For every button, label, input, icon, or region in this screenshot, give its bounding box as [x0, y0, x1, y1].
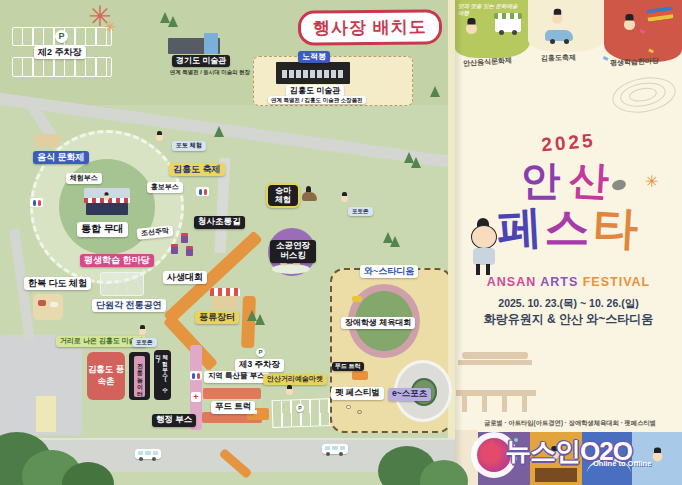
local-goods-label: 지역 특산물 부스	[204, 371, 269, 383]
horse-riding-label: 승마 체험	[266, 183, 300, 208]
title-en-word: ARTS	[540, 275, 578, 289]
gyeonggi-museum-label: 경기도 미술관	[172, 55, 230, 67]
food-truck-b-label: 푸드 트럭	[332, 362, 364, 371]
lifelong-learning-label: 평생학습 한마당	[80, 254, 154, 267]
hanok-pavilion	[455, 348, 540, 418]
food-booth-bar	[203, 388, 261, 399]
trad-playground-box: 전통놀이터	[129, 352, 150, 400]
food-culture-label: 음식 문화제	[33, 151, 89, 164]
kimhongdo-museum-subtext: 연계 특별전 / 김홍도 미술관 소장품전	[268, 96, 366, 104]
sub-events-line: 글로벌 · 아트타임(아트경연) · 장애학생체육대회 · 펫페스티벌	[461, 419, 679, 428]
museum-window-band	[282, 70, 344, 78]
hanbok-tea-label: 한복 다도 체험	[24, 277, 91, 290]
busking-label: 소공연장 버스킹	[270, 240, 316, 263]
map-title: 행사장 배치도	[298, 9, 442, 46]
photo-character	[155, 131, 164, 144]
busking-mat	[272, 264, 310, 274]
restroom-icon	[190, 371, 202, 380]
danwongak-label: 단원각 전통공연	[92, 299, 166, 312]
strip-scene-band	[535, 468, 577, 482]
folk-village-box: 김홍도 풍속촌	[87, 352, 125, 400]
parking-icon: P	[55, 30, 68, 43]
track-cart-icon	[352, 296, 362, 302]
horse-icon	[302, 192, 317, 201]
dog-icon	[346, 405, 351, 409]
poster-date: 2025. 10. 23.(목) ~ 10. 26.(일)	[455, 297, 682, 311]
lantern-box-icon	[181, 233, 188, 243]
fireworks-icon: ✳✳	[80, 0, 120, 38]
gyeonggi-museum-glass	[204, 33, 218, 54]
first-aid-icon: +	[191, 392, 201, 402]
food-festival-picnic	[35, 134, 61, 147]
festival-path-seg3	[241, 296, 256, 348]
wa-stadium-label: 와~스타디움	[360, 265, 418, 278]
tree-icon	[411, 157, 421, 168]
blue-car-icon	[545, 30, 573, 41]
parking2-label: 제2 주차장	[34, 46, 86, 59]
pale-building	[36, 396, 56, 432]
nojeokbong-label: 노적봉	[298, 51, 330, 63]
sketch-contest-label: 사생대회	[163, 271, 207, 284]
food-cart-icon	[495, 16, 521, 32]
gyeonggi-museum-subtext: 연계 특별전 / 동시대 미술의 현장	[150, 69, 270, 76]
mascot-character	[464, 18, 478, 39]
tree-icon	[430, 86, 440, 97]
title-char: 타	[591, 197, 642, 259]
photo-experience-label: 포토 체험	[172, 141, 206, 151]
kimhongdo-museum-building	[276, 62, 350, 84]
admin-booth-label: 행정 부스	[152, 414, 196, 427]
tab-kimhongdo: 김홍도축제	[541, 52, 576, 63]
festival-map: P 제2 주차장 ✳✳ 경기도 미술관 연계 특별전 / 동시대 미술의 현장 …	[0, 0, 455, 485]
esports-label: e~스포츠	[388, 388, 431, 401]
parking-icon: P	[256, 348, 265, 357]
tea-mat	[33, 294, 63, 320]
tree-icon	[214, 126, 224, 137]
poster-title-en: ANSAN ARTS FESTIVAL	[455, 275, 682, 289]
street-art-market-label: 안산거리예술마켓	[263, 374, 327, 385]
map-edge-strip	[448, 0, 455, 438]
disabled-sports-label: 장애학생 체육대회	[341, 317, 415, 329]
tram-icon	[322, 444, 348, 454]
danwongak-pavilion-icon	[100, 272, 144, 296]
street-artist-character	[285, 385, 294, 398]
watermark-tagline: Online to Offline	[593, 459, 651, 468]
booth-repair-label: 체험부스(수리)	[156, 350, 170, 400]
market-stall-icon	[210, 288, 240, 310]
experience-booth-label: 체험부스	[66, 173, 102, 184]
photozone-character	[340, 192, 349, 205]
dog-icon	[357, 410, 362, 414]
lantern-road-label: 청사초롱길	[194, 216, 245, 229]
tram-icon	[135, 449, 161, 459]
tree-icon	[255, 314, 265, 325]
mascot-character	[551, 9, 565, 29]
strip-character	[651, 447, 664, 465]
trad-playground-label: 전통놀이터	[134, 356, 145, 397]
stadium-sketch	[610, 73, 679, 118]
parking3-grid	[272, 398, 337, 428]
booth-repair-box: 체험부스(수리)	[154, 350, 171, 400]
parking2-row2	[12, 57, 112, 77]
main-stage-label: 통합 무대	[77, 222, 128, 237]
tree-icon	[390, 236, 400, 247]
tab-food-festival: 안산음식문화제	[463, 55, 513, 68]
title-en-word: ANSAN	[487, 275, 536, 289]
tree-icon	[168, 16, 178, 27]
food-truck-icon	[352, 371, 368, 380]
panel-kimhongdo	[528, 0, 606, 52]
event-poster: 맛과 멋을 잇는 문화예술 여행 안산음식문화제 김홍도축제 평생학습한마당 2…	[455, 0, 682, 485]
photozone-b-label: 포토존	[132, 338, 157, 347]
lantern-box-icon	[171, 244, 178, 254]
screenshot-root: P 제2 주차장 ✳✳ 경기도 미술관 연계 특별전 / 동시대 미술의 현장 …	[0, 0, 682, 485]
photozone-a-label: 포토존	[348, 207, 373, 216]
parking-icon: P	[296, 404, 304, 412]
stage-icon	[84, 188, 130, 216]
mascot-character-large	[463, 218, 509, 276]
restroom-icon	[30, 198, 43, 207]
poster-venue: 화랑유원지 & 안산 와~스타디움	[455, 311, 682, 328]
sparkle-icon: ✳	[645, 172, 658, 191]
parking3-label: 제3 주차장	[235, 359, 284, 372]
pet-festival-label: 펫 페스티벌	[331, 387, 384, 400]
lantern-box-icon	[186, 246, 193, 256]
kimhongdo-festival-label: 김홍도 축제	[169, 163, 225, 176]
poster-crease	[455, 0, 463, 485]
tab-lifelong: 평생학습한마당	[610, 56, 659, 69]
food-truck-a-label: 푸드 트럭	[211, 401, 255, 414]
title-char: 스	[545, 198, 593, 258]
pungnyu-market-label: 풍류장터	[195, 311, 239, 324]
title-en-word: FESTIVAL	[583, 275, 651, 289]
promo-booth-label: 홍보부스	[147, 182, 183, 193]
mascot-character	[622, 14, 636, 35]
restroom-icon	[196, 187, 209, 196]
